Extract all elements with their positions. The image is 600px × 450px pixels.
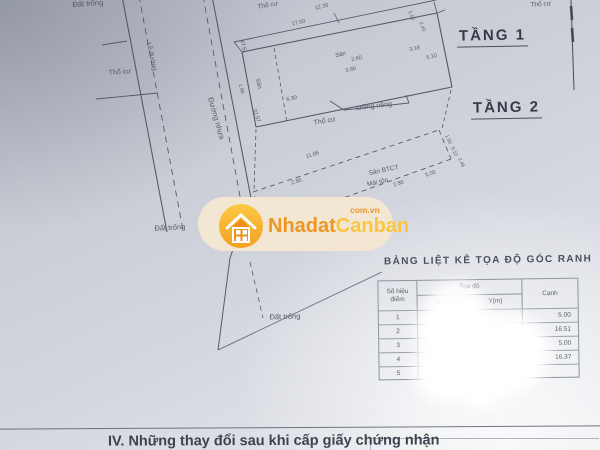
dim-47-51: 47.51	[238, 39, 248, 54]
scanned-cadastral-photo: Đất trống Đất trống Đất trống Thổ cư Thổ…	[0, 0, 600, 450]
dim-3-90: 3.90	[345, 66, 357, 74]
section-iv-title: IV. Những thay đổi sau khi cấp giấy chứn…	[108, 432, 440, 449]
mai-ton-label: Mái tôn	[367, 177, 390, 188]
dim-2-86: 2.86	[291, 178, 303, 187]
tho-cu-label: Thổ cư	[313, 115, 337, 127]
floor-1-title: TẦNG 1	[457, 26, 528, 47]
dim-32-57: 32.57	[251, 108, 261, 123]
tho-cu-label: Thổ cư	[257, 0, 279, 11]
row-point-number: 1	[379, 311, 418, 325]
house-icon	[219, 204, 263, 248]
watermark-pill: com.vn NhadatCanban	[198, 197, 393, 251]
dim-2-40: 2.40	[417, 21, 426, 32]
house-logo-icon	[219, 204, 263, 248]
dim-2-60: 2.60	[351, 55, 363, 63]
duong-nhua-label: Đường nhựa	[206, 96, 227, 141]
col-edge-header: Cạnh	[522, 279, 577, 309]
san-label: Sân	[335, 51, 347, 59]
dat-trong-label: Đất trống	[72, 0, 103, 9]
dat-trong-label: Đất trống	[269, 311, 300, 321]
dim-12-30: 12.30	[314, 2, 329, 11]
dim-6-30: 6.30	[286, 95, 298, 103]
dim-11-86: 11.86	[305, 150, 320, 160]
tho-cu-label: Thổ cư	[109, 67, 132, 77]
le-duong-label: Lề đường	[145, 42, 160, 72]
brand-nhadat: Nhadat	[268, 215, 336, 237]
dim-1-50: 1.50	[406, 10, 415, 21]
dim-2-86: 2.86	[393, 180, 405, 189]
flash-glare	[452, 355, 508, 407]
watermark-brand: NhadatCanban	[268, 215, 409, 238]
floor-2-title: TẦNG 2	[471, 98, 542, 119]
dat-trong-label: Đất trống	[154, 222, 185, 233]
dim-5-10: 5.10	[449, 146, 459, 158]
col-point-header: Số hiệu điểm	[378, 281, 417, 311]
row-point-number: 3	[379, 339, 418, 353]
tuong-rieng-label: tường riêng	[355, 101, 392, 112]
dim-5-10: 5.10	[426, 53, 438, 61]
tho-cu-label: Thổ cư	[530, 0, 552, 9]
brand-canban: Canban	[336, 215, 409, 237]
paper-fold-mark	[571, 0, 574, 90]
col-point-line2: điểm	[390, 296, 404, 303]
dim-17-50: 17.50	[291, 19, 306, 28]
dim-1-50: 1.50	[443, 134, 453, 146]
san-label: Sân	[254, 78, 263, 90]
dim-3-18: 3.18	[409, 45, 421, 53]
row-point-number: 2	[379, 325, 418, 339]
watermark-domain: com.vn	[350, 205, 380, 215]
dim-2-46: 2.46	[456, 157, 466, 169]
dim-5-05: 5.05	[425, 170, 437, 179]
dim-1-98: 1.98	[237, 83, 246, 94]
flash-glare	[430, 281, 482, 321]
san-btct-label: Sân BTCT	[368, 164, 399, 177]
